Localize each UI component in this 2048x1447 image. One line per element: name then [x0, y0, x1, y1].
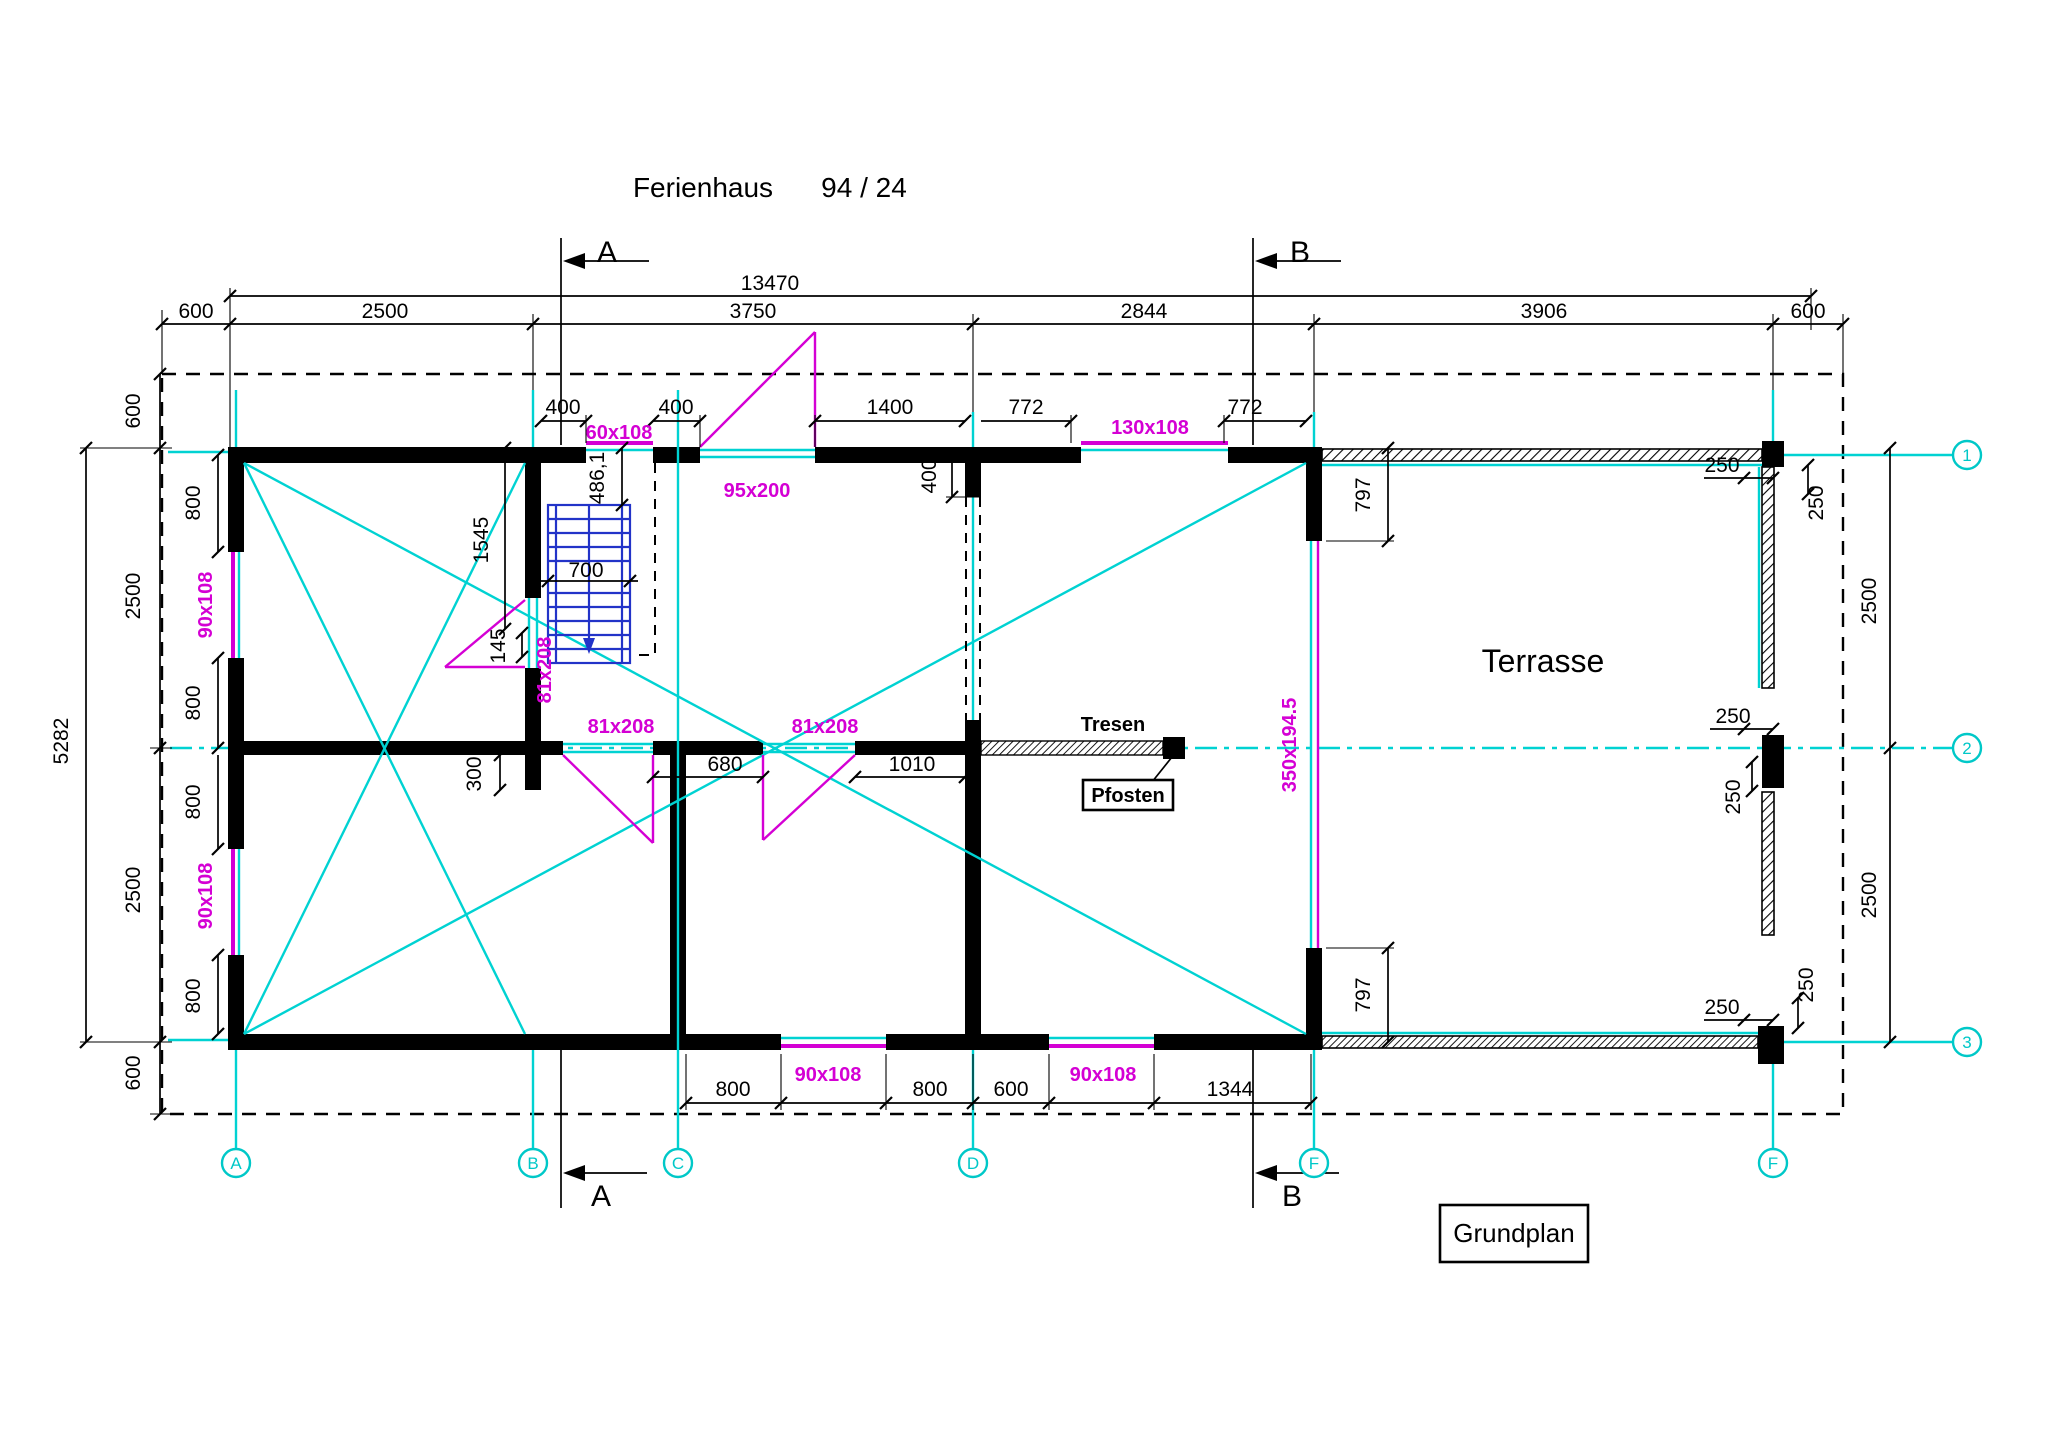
plan-number: 94 / 24: [821, 172, 907, 203]
floor-plan-page: A B C D F F 1 2 3 Pfosten Grundplan Feri…: [0, 0, 2048, 1447]
dim-1400: 1400: [867, 396, 914, 419]
dim-left-2500b: 2500: [122, 867, 145, 914]
dim-300: 300: [463, 756, 486, 791]
dim-800-2: 800: [182, 685, 205, 720]
window-90x108-label-l2: 90x108: [195, 863, 217, 930]
dim-400a: 400: [545, 396, 580, 419]
dim-bottom-1344: 1344: [1207, 1078, 1254, 1101]
drawing-title: Grundplan: [1453, 1218, 1574, 1248]
dim-1010: 1010: [889, 753, 936, 776]
grid-label-3: 3: [1962, 1033, 1971, 1052]
grid-label-2: 2: [1962, 739, 1971, 758]
tresen-counter: [981, 741, 1163, 755]
dim-250-3: 250: [1715, 705, 1750, 728]
door-81x208-label-3: 81x208: [534, 637, 556, 704]
dim-top-3906: 3906: [1521, 300, 1568, 323]
dim-486-1: 486,1: [586, 452, 609, 505]
grid-label-a: A: [230, 1154, 242, 1173]
window-90x108-label-b2: 90x108: [1070, 1064, 1137, 1086]
section-b-top: B: [1290, 236, 1310, 269]
dim-250-5: 250: [1704, 996, 1739, 1019]
dim-250-2: 250: [1805, 485, 1828, 520]
drawing-title-box: Grundplan: [1440, 1205, 1588, 1262]
grid-label-1: 1: [1962, 446, 1971, 465]
dim-800-1: 800: [182, 485, 205, 520]
dim-250-1: 250: [1704, 454, 1739, 477]
dim-top-600l: 600: [178, 300, 213, 323]
door-81x208-label-2: 81x208: [792, 716, 859, 738]
section-a-top: A: [597, 236, 617, 269]
dim-left-600t: 600: [122, 393, 145, 428]
dim-797-bottom: 797: [1352, 977, 1375, 1012]
dim-250-4: 250: [1722, 779, 1745, 814]
section-a-bottom: A: [591, 1180, 611, 1213]
dim-800-4: 800: [182, 978, 205, 1013]
glazing-350x194-label: 350x194.5: [1279, 698, 1301, 793]
grid-label-d: D: [967, 1154, 979, 1173]
section-b-bottom: B: [1282, 1180, 1302, 1213]
window-130x108-label: 130x108: [1111, 417, 1189, 439]
door-81x208-label-1: 81x208: [588, 716, 655, 738]
dim-top-2844: 2844: [1121, 300, 1168, 323]
dim-800-3: 800: [182, 784, 205, 819]
dim-bottom-600: 600: [993, 1078, 1028, 1101]
dim-772b: 772: [1227, 396, 1262, 419]
dim-1545: 1545: [470, 517, 493, 564]
window-60x108-label: 60x108: [586, 422, 653, 444]
grid-label-f2: F: [1768, 1154, 1778, 1173]
grid-label-b: B: [527, 1154, 538, 1173]
dim-13470: 13470: [741, 272, 799, 295]
dim-left-2500a: 2500: [122, 573, 145, 620]
grid-label-f1: F: [1309, 1154, 1319, 1173]
pfosten-label: Pfosten: [1091, 785, 1164, 807]
dim-797-top: 797: [1352, 477, 1375, 512]
dim-772a: 772: [1008, 396, 1043, 419]
tresen-label: Tresen: [1081, 714, 1145, 736]
floor-plan-drawing: A B C D F F 1 2 3 Pfosten Grundplan Feri…: [0, 0, 2048, 1447]
terrasse-label: Terrasse: [1482, 643, 1605, 679]
dim-bottom-800a: 800: [715, 1078, 750, 1101]
dim-400-vert: 400: [918, 458, 941, 493]
dim-left-600b: 600: [122, 1055, 145, 1090]
dim-bottom-800b: 800: [912, 1078, 947, 1101]
grid-label-c: C: [672, 1154, 684, 1173]
dim-top-2500: 2500: [362, 300, 409, 323]
dim-145: 145: [487, 628, 510, 663]
window-90x108-label-b1: 90x108: [795, 1064, 862, 1086]
door-95x200-label: 95x200: [724, 480, 791, 502]
dim-top-3750: 3750: [730, 300, 777, 323]
plan-title: Ferienhaus: [633, 172, 773, 203]
dim-right-2500b: 2500: [1858, 872, 1881, 919]
dim-right-2500a: 2500: [1858, 578, 1881, 625]
dim-680: 680: [707, 753, 742, 776]
dim-700: 700: [568, 559, 603, 582]
window-90x108-label-l1: 90x108: [195, 572, 217, 639]
dim-400b: 400: [658, 396, 693, 419]
dim-250-6: 250: [1795, 967, 1818, 1002]
dim-5282: 5282: [50, 718, 73, 765]
dim-top-600r: 600: [1790, 300, 1825, 323]
